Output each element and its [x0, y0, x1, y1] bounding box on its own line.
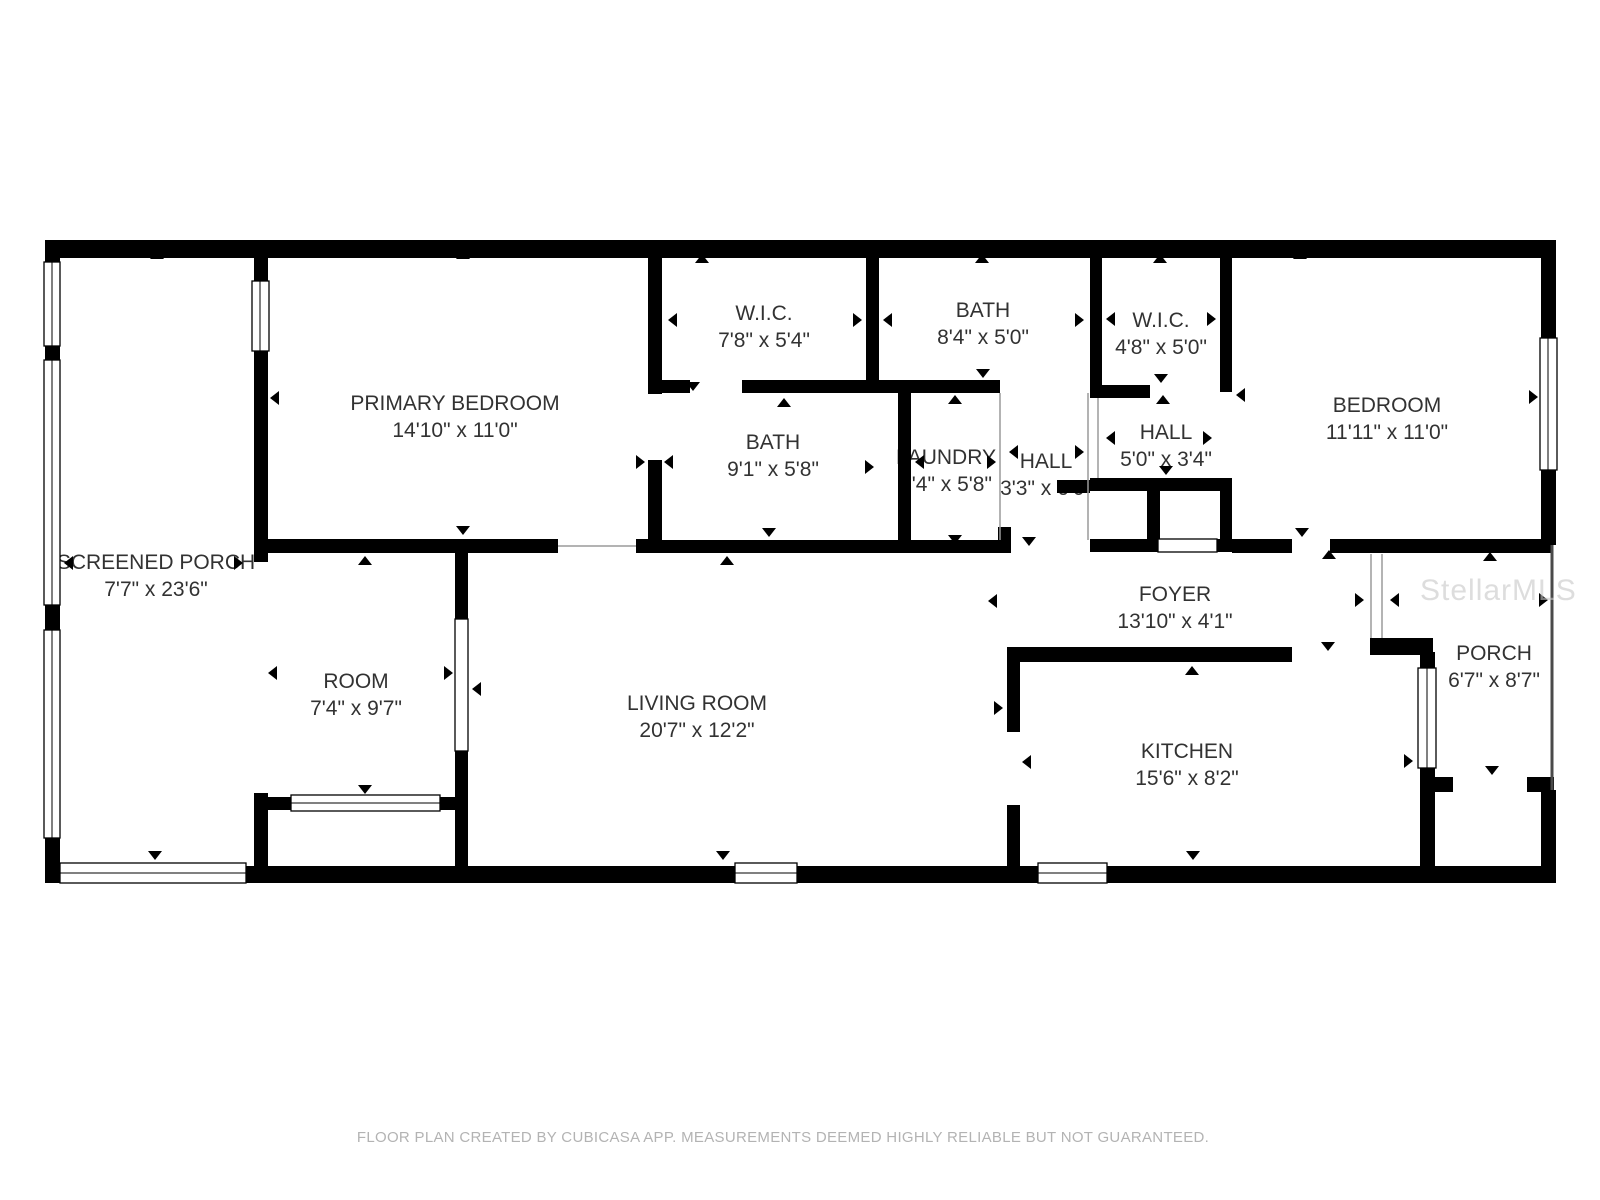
- room-dims: 3'3" x 6'0": [1000, 475, 1092, 502]
- room-name: ROOM: [310, 668, 402, 695]
- room-name: W.I.C.: [718, 300, 810, 327]
- room-label-screened-porch: SCREENED PORCH 7'7" x 23'6": [57, 549, 255, 603]
- room-dims: 7'4" x 9'7": [310, 695, 402, 722]
- room-label-bath-2: BATH 9'1" x 5'8": [727, 429, 819, 483]
- room-name: HALL: [1120, 419, 1212, 446]
- room-name: SCREENED PORCH: [57, 549, 255, 576]
- room-dims: 4'8" x 5'0": [1115, 334, 1207, 361]
- room-name: LIVING ROOM: [627, 690, 767, 717]
- room-name: KITCHEN: [1135, 738, 1239, 765]
- room-dims: 6'7" x 8'7": [1448, 667, 1540, 694]
- room-label-room: ROOM 7'4" x 9'7": [310, 668, 402, 722]
- room-labels: SCREENED PORCH 7'7" x 23'6" PRIMARY BEDR…: [0, 0, 1600, 1200]
- room-label-wic-1: W.I.C. 7'8" x 5'4": [718, 300, 810, 354]
- room-dims: 8'4" x 5'0": [937, 324, 1029, 351]
- room-label-bedroom: BEDROOM 11'11" x 11'0": [1326, 392, 1448, 446]
- room-label-porch: PORCH 6'7" x 8'7": [1448, 640, 1540, 694]
- room-label-bath-1: BATH 8'4" x 5'0": [937, 297, 1029, 351]
- mls-watermark: StellarMLS: [1420, 574, 1577, 608]
- room-dims: 5'0" x 3'4": [1120, 446, 1212, 473]
- room-dims: 15'6" x 8'2": [1135, 765, 1239, 792]
- room-name: BEDROOM: [1326, 392, 1448, 419]
- room-label-kitchen: KITCHEN 15'6" x 8'2": [1135, 738, 1239, 792]
- room-label-primary-bedroom: PRIMARY BEDROOM 14'10" x 11'0": [350, 390, 559, 444]
- room-name: W.I.C.: [1115, 307, 1207, 334]
- room-label-wic-2: W.I.C. 4'8" x 5'0": [1115, 307, 1207, 361]
- room-name: PRIMARY BEDROOM: [350, 390, 559, 417]
- room-dims: 9'1" x 5'8": [727, 456, 819, 483]
- room-dims: 3'4" x 5'8": [896, 471, 996, 498]
- room-name: FOYER: [1117, 581, 1232, 608]
- room-name: BATH: [937, 297, 1029, 324]
- room-name: PORCH: [1448, 640, 1540, 667]
- room-label-hall-2: HALL 5'0" x 3'4": [1120, 419, 1212, 473]
- room-dims: 20'7" x 12'2": [627, 717, 767, 744]
- room-dims: 13'10" x 4'1": [1117, 608, 1232, 635]
- room-dims: 7'8" x 5'4": [718, 327, 810, 354]
- room-name: BATH: [727, 429, 819, 456]
- room-name: HALL: [1000, 448, 1092, 475]
- room-label-hall-1: HALL 3'3" x 6'0": [1000, 448, 1092, 502]
- room-label-foyer: FOYER 13'10" x 4'1": [1117, 581, 1232, 635]
- room-label-laundry: LAUNDRY 3'4" x 5'8": [896, 444, 996, 498]
- room-dims: 14'10" x 11'0": [350, 417, 559, 444]
- room-label-living-room: LIVING ROOM 20'7" x 12'2": [627, 690, 767, 744]
- room-dims: 7'7" x 23'6": [57, 576, 255, 603]
- floor-plan-page: SCREENED PORCH 7'7" x 23'6" PRIMARY BEDR…: [0, 0, 1600, 1200]
- room-name: LAUNDRY: [896, 444, 996, 471]
- room-dims: 11'11" x 11'0": [1326, 419, 1448, 446]
